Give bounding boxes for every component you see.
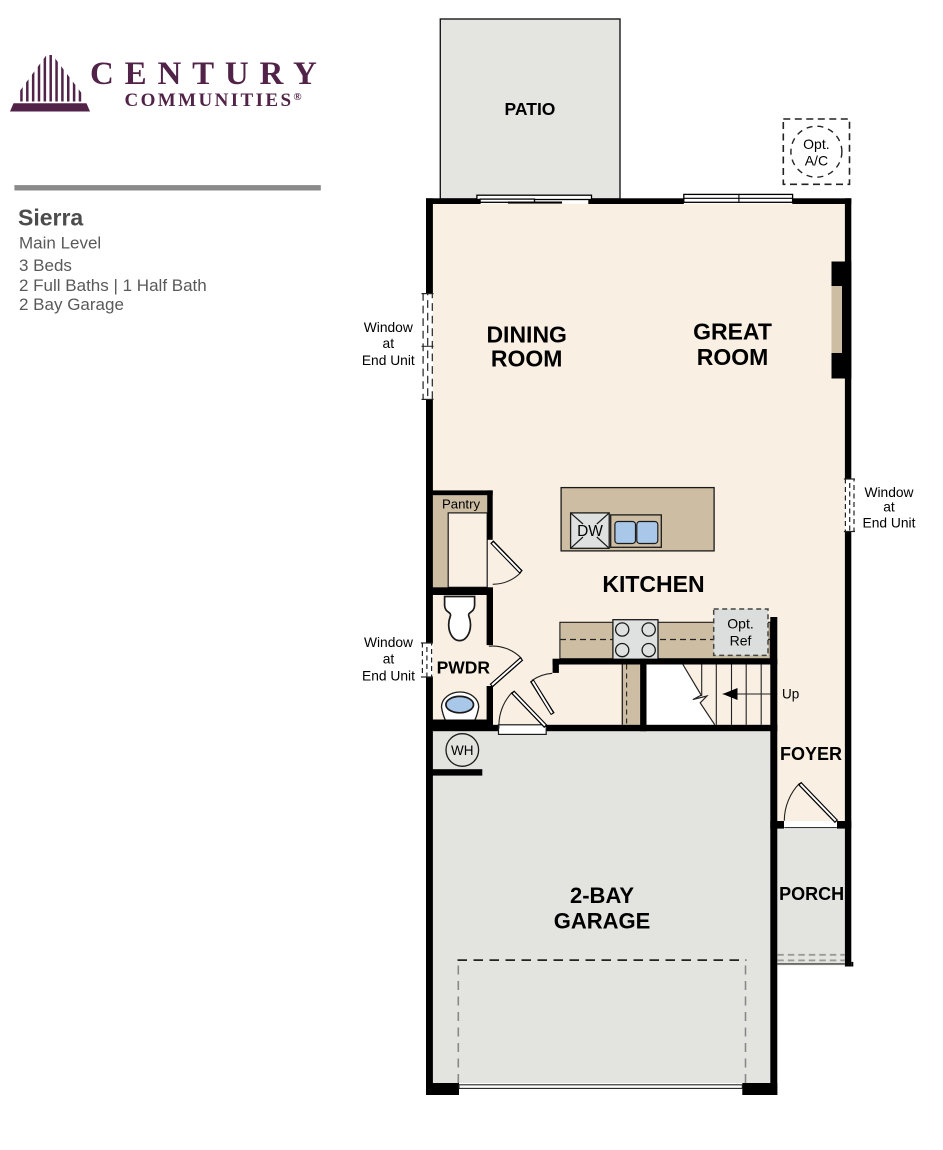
svg-text:2-BAY: 2-BAY [570, 883, 634, 908]
svg-text:ROOM: ROOM [491, 346, 563, 372]
svg-text:DINING: DINING [486, 322, 567, 348]
svg-text:DW: DW [577, 523, 603, 540]
svg-text:GREAT: GREAT [693, 319, 772, 345]
svg-text:Window: Window [864, 485, 913, 500]
svg-text:PATIO: PATIO [505, 99, 556, 119]
svg-text:GARAGE: GARAGE [554, 908, 651, 933]
svg-text:Up: Up [782, 687, 799, 702]
svg-text:at: at [383, 652, 395, 667]
svg-text:at: at [383, 336, 395, 351]
svg-text:End Unit: End Unit [863, 516, 916, 531]
svg-text:CENTURY: CENTURY [90, 56, 328, 92]
svg-text:COMMUNITIES®: COMMUNITIES® [125, 90, 305, 111]
svg-text:FOYER: FOYER [780, 744, 842, 764]
svg-text:Sierra: Sierra [18, 205, 83, 231]
svg-text:2 Full Baths | 1 Half Bath: 2 Full Baths | 1 Half Bath [19, 276, 207, 295]
svg-text:ROOM: ROOM [697, 344, 769, 370]
svg-text:Ref: Ref [730, 633, 752, 649]
svg-text:Main Level: Main Level [19, 234, 101, 253]
svg-text:PORCH: PORCH [779, 884, 844, 904]
svg-text:End Unit: End Unit [362, 669, 415, 684]
svg-text:Opt.: Opt. [803, 136, 829, 152]
svg-text:Window: Window [364, 635, 413, 650]
svg-text:End Unit: End Unit [362, 353, 415, 368]
svg-text:3 Beds: 3 Beds [19, 256, 72, 275]
svg-text:Window: Window [364, 320, 413, 335]
svg-text:Opt.: Opt. [727, 616, 753, 632]
svg-text:A/C: A/C [805, 153, 828, 169]
svg-text:WH: WH [451, 743, 474, 758]
svg-text:2 Bay Garage: 2 Bay Garage [19, 295, 124, 314]
svg-text:KITCHEN: KITCHEN [602, 571, 704, 597]
svg-text:Pantry: Pantry [442, 497, 481, 512]
svg-text:PWDR: PWDR [437, 658, 491, 678]
svg-text:at: at [883, 500, 895, 515]
